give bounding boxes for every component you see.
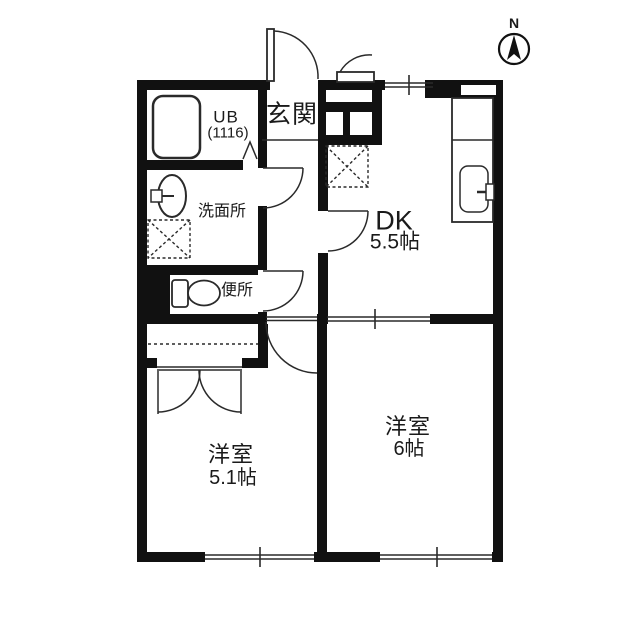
room-label-washroom: 洗面所 (198, 204, 246, 220)
toilet-bowl-icon (172, 280, 220, 307)
toilet-door (263, 271, 303, 311)
kitchen-sink-icon (460, 166, 488, 212)
room-label-toilet: 便所 (221, 283, 253, 299)
window-dk-room6 (327, 309, 430, 329)
floor-plan-drawing (0, 0, 640, 640)
storage-slot-left (326, 112, 343, 135)
wall-hall-right-b (318, 253, 328, 314)
washbasin-icon (151, 175, 186, 217)
wall-bottom-right-corner (492, 552, 503, 562)
storage-slot-right (350, 112, 372, 135)
kitchen-counter-icon (452, 98, 494, 222)
room-size-western-51: 5.1帖 (209, 468, 257, 488)
room-label-western-51: 洋室 (208, 444, 254, 466)
floor-plan-page: { "compass": { "north_label": "N" }, "ro… (0, 0, 640, 640)
storage-door (337, 55, 374, 82)
wall-top-left (137, 80, 270, 90)
wall-bottom-left (137, 552, 205, 562)
wall-mid-band-right (430, 314, 503, 324)
wall-hall-left-b (258, 206, 267, 270)
bathtub-icon (153, 96, 200, 158)
wall-closet-bottom-left (137, 358, 157, 368)
room-label-western-6: 洋室 (385, 416, 431, 438)
wall-ub-washroom (137, 160, 243, 170)
north-compass (499, 34, 529, 64)
compass-north-label: N (509, 16, 519, 30)
entrance-door (267, 29, 318, 81)
washroom-door (263, 168, 303, 208)
room51-door (266, 317, 317, 373)
ub-door (243, 142, 257, 159)
dk-door (328, 211, 368, 251)
room-label-unit-bath: UB (213, 109, 239, 126)
room-size-western-6: 6帖 (393, 439, 424, 459)
window-bottom-room51 (205, 547, 314, 567)
storage-slot-wide (326, 90, 372, 102)
kitchen-back-window-slot (461, 85, 496, 95)
wall-closet-bottom-right (242, 358, 268, 368)
washing-machine-space-icon (148, 220, 190, 258)
refrigerator-space-icon (326, 146, 368, 187)
room-size-dk: 5.5帖 (370, 232, 420, 253)
wall-room-divider (317, 314, 327, 562)
wall-mid-band-left (137, 314, 266, 324)
room-size-unit-bath: (1116) (207, 126, 248, 141)
window-bottom-room6 (380, 547, 492, 567)
closet-double-doors (157, 367, 242, 414)
room-label-entrance: 玄関 (266, 103, 318, 128)
